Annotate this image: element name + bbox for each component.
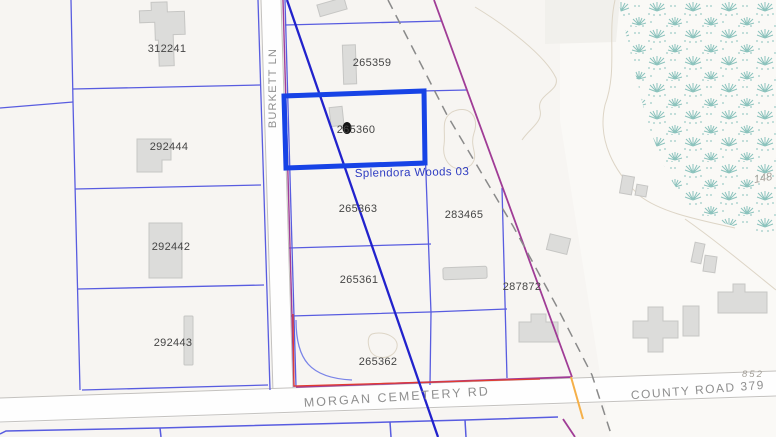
building-footprint (443, 266, 487, 280)
elevation-label-852: 852 (742, 369, 764, 380)
parcel-label[interactable]: 287872 (503, 281, 542, 293)
parcel-label[interactable]: 292443 (154, 337, 193, 349)
building-footprint (635, 184, 648, 197)
parcel-label[interactable]: 265359 (353, 57, 392, 69)
parcel-label[interactable]: 265361 (340, 274, 379, 286)
parcel-label[interactable]: 265363 (339, 203, 378, 215)
landcover-patch (545, 0, 620, 44)
subdivision-label: Splendora Woods 03 (355, 166, 470, 180)
building-footprint (620, 175, 635, 195)
road-label-burkett-ln: BURKETT LN (267, 48, 279, 128)
parcel-label[interactable]: 312241 (148, 43, 187, 55)
building-footprint (703, 255, 717, 273)
parcel-label[interactable]: 292442 (152, 241, 191, 253)
parcel-label[interactable]: 292444 (150, 141, 189, 153)
map-canvas[interactable]: 312241 292444 292442 292443 265359 26536… (0, 0, 776, 437)
parcel-label[interactable]: 283465 (445, 209, 484, 221)
parcel-label[interactable]: 265362 (359, 356, 398, 368)
parcel-label-selected[interactable]: 265360 (337, 124, 376, 136)
building-footprint (683, 306, 699, 336)
